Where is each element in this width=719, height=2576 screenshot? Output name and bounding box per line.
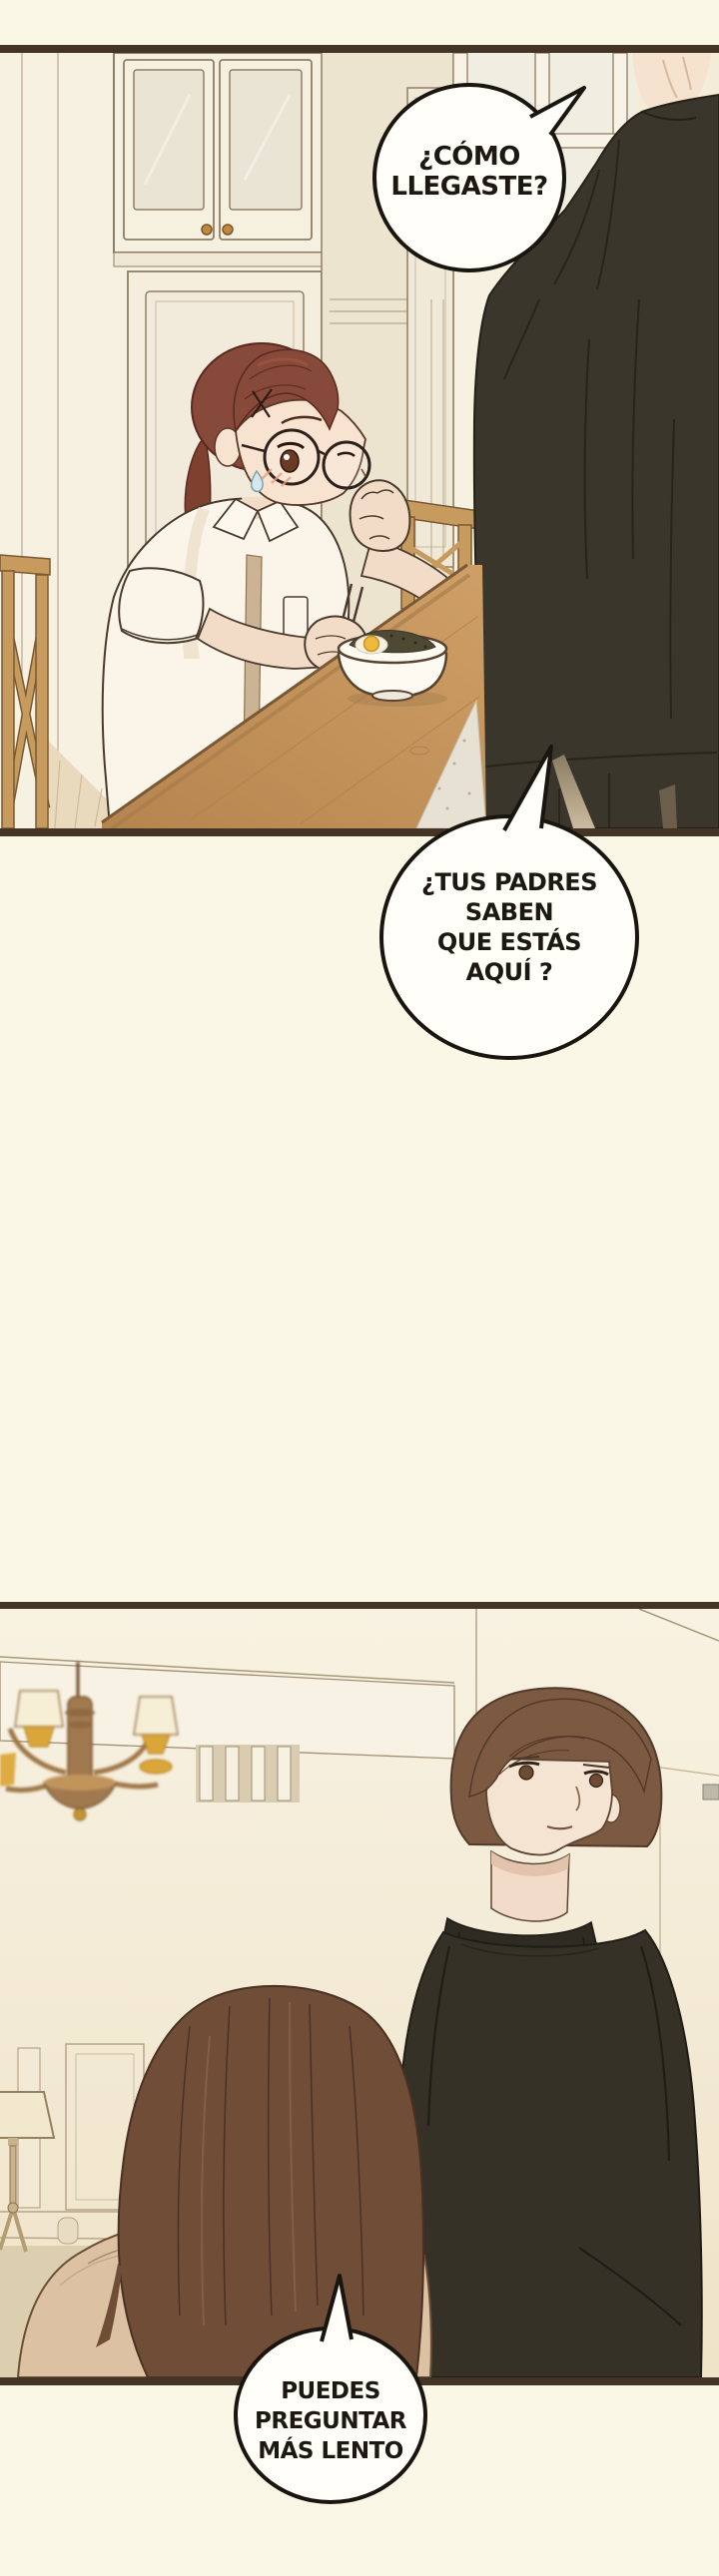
egg-yolk <box>364 637 379 652</box>
speech-text: ¿CÓMO LLEGASTE? <box>390 142 547 202</box>
man-eye <box>590 1775 603 1788</box>
speech-line: MÁS LENTO <box>255 2436 406 2466</box>
speech-text: ¿TUS PADRES SABEN QUE ESTÁS AQUÍ ? <box>421 867 597 987</box>
speech-line: ¿TUS PADRES <box>421 867 597 897</box>
panel-border-top <box>0 45 719 53</box>
panel-border-top <box>0 1602 719 1609</box>
upper-cabinet <box>114 53 324 266</box>
speech-bubble-2: ¿TUS PADRES SABEN QUE ESTÁS AQUÍ ? <box>379 814 639 1060</box>
man-eye <box>519 1766 533 1780</box>
lamp-shade <box>134 1697 178 1735</box>
lamp-shade <box>15 1691 63 1727</box>
panel-1-illustration <box>0 45 719 836</box>
panel-border-bottom <box>0 828 719 836</box>
speech-bubble-1: ¿CÓMO LLEGASTE? <box>372 83 566 272</box>
cabinet-knob <box>223 225 233 235</box>
speech-line: PUEDES <box>255 2376 406 2406</box>
panel-2-illustration <box>0 1602 719 2386</box>
speech-text: PUEDES PREGUNTAR MÁS LENTO <box>255 2376 406 2466</box>
webtoon-page: ¿CÓMO LLEGASTE? ¿TUS PADRES SABEN QUE ES… <box>0 0 719 2576</box>
speech-line: ¿CÓMO <box>390 142 547 172</box>
speech-line: PREGUNTAR <box>255 2406 406 2436</box>
shirt-sleeve <box>119 568 203 643</box>
rice-bowl <box>339 631 447 707</box>
woman-hair <box>119 1986 423 2377</box>
cabinet-knob <box>202 225 212 235</box>
speech-line: AQUÍ ? <box>421 957 597 987</box>
wall-fixture <box>703 1785 719 1800</box>
girl-eye <box>281 450 299 472</box>
speech-line: SABEN <box>421 897 597 927</box>
speech-bubble-3: PUEDES PREGUNTAR MÁS LENTO <box>234 2326 427 2504</box>
speech-line: LLEGASTE? <box>390 172 547 202</box>
speech-line: QUE ESTÁS <box>421 927 597 957</box>
